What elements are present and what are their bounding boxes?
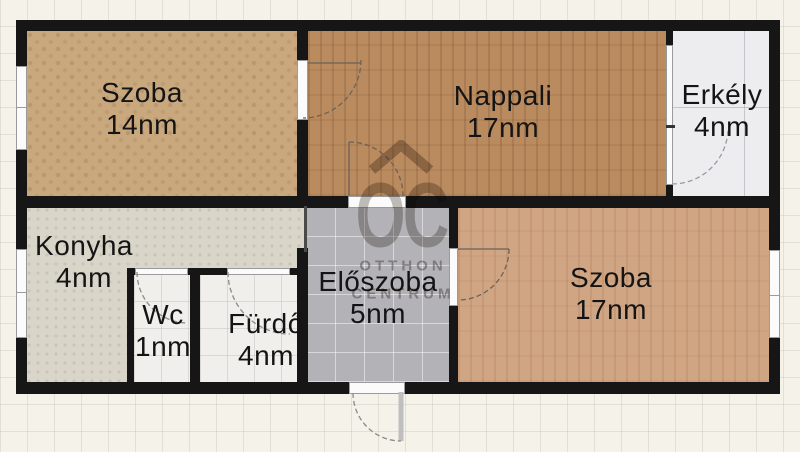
room-label-konyha: Konyha 4nm (35, 230, 133, 294)
room-area: 4nm (238, 340, 294, 371)
room-area: 4nm (56, 262, 112, 293)
room-area: 14nm (106, 109, 178, 140)
room-name: Fürdő (228, 308, 304, 339)
room-name: Szoba (101, 77, 183, 108)
room-name: Előszoba (318, 266, 437, 297)
wall-nappali-erkely-lower (666, 185, 673, 208)
room-name: Wc (142, 299, 183, 330)
window-szoba14 (16, 66, 27, 150)
room-area: 17nm (575, 294, 647, 325)
balcony-door-hinge (666, 125, 675, 128)
wall-middle-right (406, 196, 780, 208)
room-label-eloszoba: Előszoba 5nm (318, 266, 437, 330)
room-label-nappali: Nappali 17nm (454, 80, 552, 144)
wall-szoba14-nappali-upper (297, 20, 308, 60)
window-szoba17 (769, 250, 780, 338)
room-name: Konyha (35, 230, 133, 261)
floor-plan: Szoba 14nm Nappali 17nm Erkély 4nm Konyh… (0, 0, 800, 452)
partition-konyha-eloszoba (304, 206, 307, 252)
balcony-glass-door (666, 45, 673, 185)
room-label-furdo: Fürdő 4nm (228, 308, 304, 372)
room-area: 17nm (467, 112, 539, 143)
wall-bottom-right (405, 382, 780, 394)
wall-wc-furdo (190, 268, 200, 382)
room-name: Szoba (570, 262, 652, 293)
wall-furdo-top-a (188, 268, 227, 275)
window-mullion (17, 107, 26, 108)
wall-eloszoba-szoba17-upper (449, 208, 458, 248)
wall-furdo-top-b (290, 268, 308, 275)
room-area: 5nm (350, 298, 406, 329)
wall-eloszoba-szoba17-lower (449, 306, 458, 382)
window-konyha (16, 249, 27, 338)
wall-szoba14-nappali-lower (297, 120, 308, 208)
window-mullion (770, 295, 779, 296)
room-name: Erkély (682, 79, 763, 110)
room-name: Nappali (454, 80, 552, 111)
window-mullion (17, 292, 26, 293)
door-frame-entrance (349, 382, 405, 394)
room-area: 4nm (694, 111, 750, 142)
room-label-szoba-17: Szoba 17nm (570, 262, 652, 326)
door-frame-szoba14-nappali (297, 60, 308, 120)
door-frame-nappali-eloszoba (348, 196, 406, 208)
door-frame-eloszoba-szoba17 (449, 248, 458, 306)
wall-nappali-erkely-upper (666, 20, 673, 45)
door-frame-wc (135, 268, 188, 275)
room-label-wc: Wc 1nm (135, 299, 191, 363)
room-area: 1nm (135, 331, 191, 362)
room-label-szoba-14: Szoba 14nm (101, 77, 183, 141)
entrance-door-arc (353, 393, 401, 441)
door-frame-furdo (227, 268, 290, 275)
room-label-erkely: Erkély 4nm (682, 79, 763, 143)
